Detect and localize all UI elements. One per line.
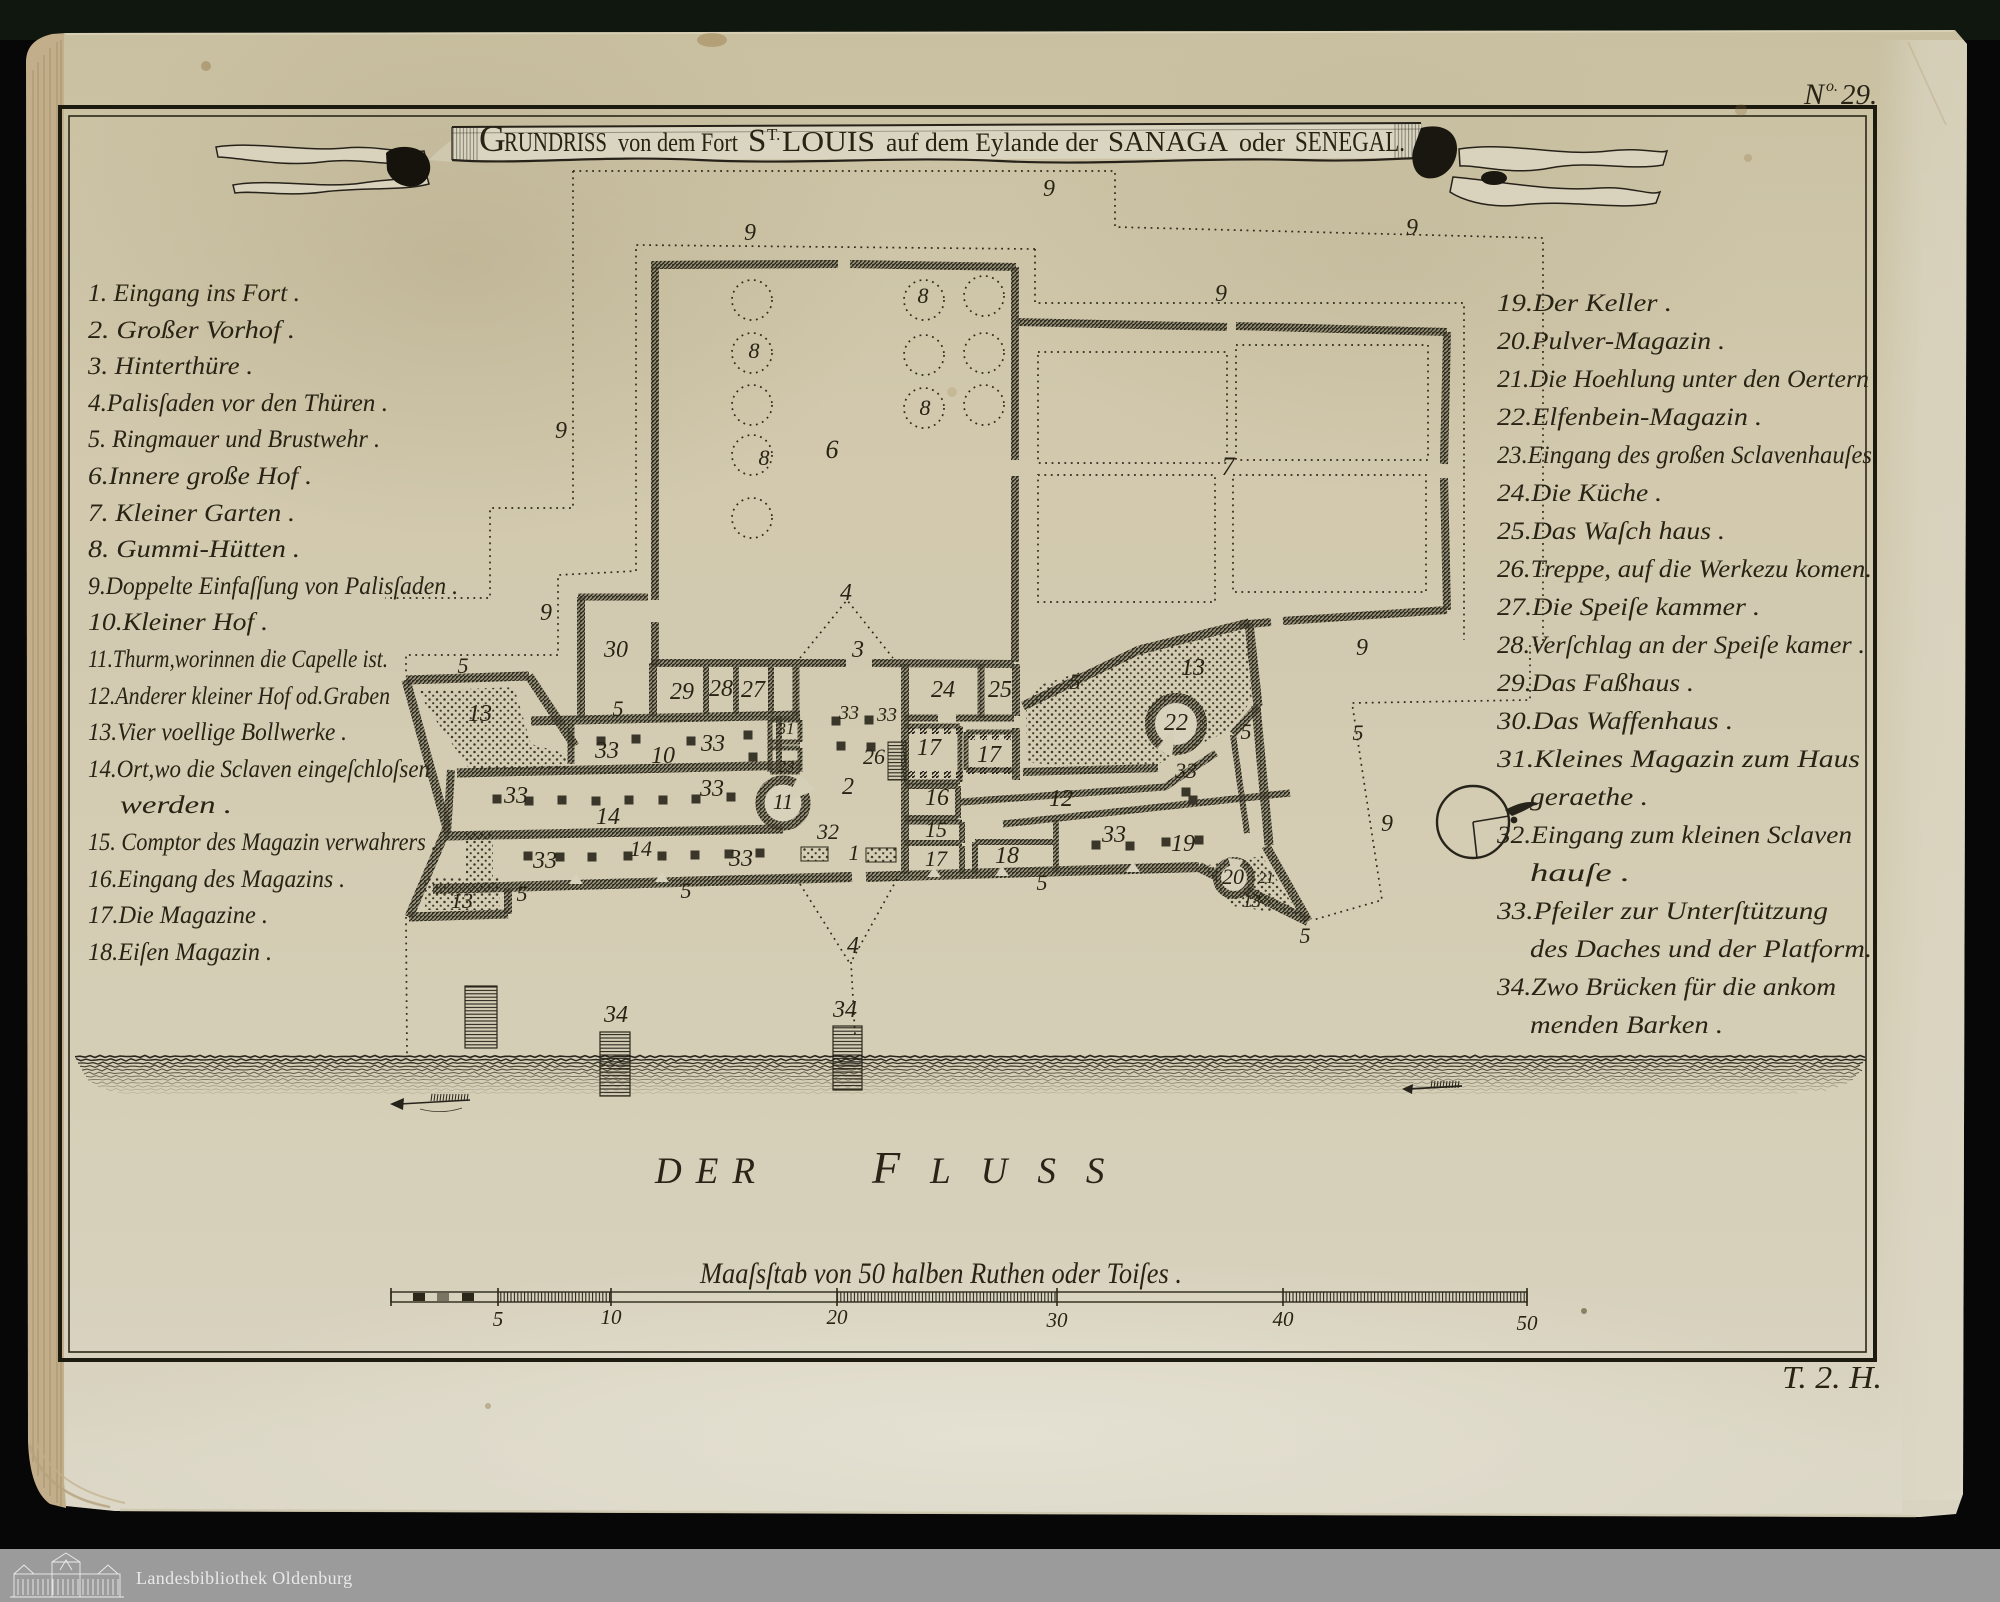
svg-text:33: 33: [876, 704, 897, 726]
svg-text:33.Pfeiler zur Unterſtützung: 33.Pfeiler zur Unterſtützung: [1496, 898, 1828, 925]
svg-text:geraethe .: geraethe .: [1530, 784, 1648, 811]
svg-text:30: 30: [603, 637, 628, 663]
svg-text:5: 5: [493, 1307, 504, 1331]
svg-text:28.Verſchlag an der Speiſe kam: 28.Verſchlag an der Speiſe kamer .: [1497, 632, 1865, 659]
svg-text:31: 31: [777, 719, 795, 738]
svg-text:5: 5: [458, 653, 469, 678]
svg-text:34.Zwo Brücken für die ankom: 34.Zwo Brücken für die ankom: [1496, 974, 1836, 1001]
svg-text:5: 5: [517, 881, 528, 906]
svg-text:5: 5: [1241, 719, 1252, 744]
svg-text:14: 14: [596, 804, 620, 830]
svg-text:18.Eiſen Magazin .: 18.Eiſen Magazin .: [88, 939, 272, 966]
svg-text:T.: T.: [767, 125, 780, 144]
svg-text:8: 8: [759, 445, 770, 470]
svg-text:17.Die Magazine .: 17.Die Magazine .: [88, 902, 268, 929]
svg-text:auf dem Eylande der: auf dem Eylande der: [886, 128, 1098, 157]
svg-text:5: 5: [613, 696, 624, 721]
svg-text:5: 5: [1353, 720, 1364, 745]
svg-text:21: 21: [1258, 870, 1274, 887]
svg-text:10: 10: [651, 743, 675, 769]
svg-text:34: 34: [603, 1002, 628, 1028]
svg-text:G: G: [479, 119, 506, 160]
svg-text:4: 4: [840, 580, 852, 606]
svg-text:15. Comptor des Magazin verwah: 15. Comptor des Magazin verwahrers .: [88, 829, 437, 856]
svg-text:S: S: [748, 123, 766, 159]
svg-text:21.Die Hoehlung unter den Oert: 21.Die Hoehlung unter den Oertern: [1497, 366, 1869, 393]
svg-text:33: 33: [503, 783, 528, 809]
svg-text:9.Doppelte Einfaſſung von Pali: 9.Doppelte Einfaſſung von Palisſaden .: [88, 573, 458, 600]
svg-text:14.Ort,wo die Sclaven eingeſch: 14.Ort,wo die Sclaven eingeſchloſsen: [88, 756, 430, 783]
svg-text:19.Der Keller .: 19.Der Keller .: [1497, 290, 1672, 317]
svg-text:DER: DER: [654, 1151, 769, 1192]
svg-text:25.Das Waſch haus .: 25.Das Waſch haus .: [1497, 518, 1725, 545]
svg-text:hauſe .: hauſe .: [1530, 860, 1630, 887]
svg-text:6.Innere große Hof .: 6.Innere große Hof .: [88, 463, 312, 490]
svg-text:20: 20: [1222, 864, 1244, 889]
svg-text:8: 8: [918, 283, 929, 308]
svg-text:29.: 29.: [1841, 79, 1877, 111]
svg-text:9: 9: [555, 418, 567, 444]
svg-text:23.Eingang des großen Sclavenh: 23.Eingang des großen Sclavenhauſes: [1497, 442, 1872, 469]
svg-text:14: 14: [630, 836, 652, 861]
svg-text:10: 10: [601, 1305, 623, 1329]
svg-text:o.: o.: [1826, 78, 1838, 95]
svg-text:29.Das Faßhaus .: 29.Das Faßhaus .: [1497, 670, 1694, 697]
svg-text:27.Die Speiſe kammer .: 27.Die Speiſe kammer .: [1497, 594, 1760, 621]
svg-text:11.Thurm,worinnen die Capelle: 11.Thurm,worinnen die Capelle ist.: [88, 646, 388, 673]
svg-text:50: 50: [1517, 1311, 1539, 1335]
svg-text:13.Vier voellige Bollwerke .: 13.Vier voellige Bollwerke .: [88, 719, 347, 746]
svg-text:5: 5: [1300, 923, 1311, 948]
svg-text:T. 2. H.: T. 2. H.: [1782, 1359, 1882, 1395]
svg-text:31.Kleines Magazin zum Haus: 31.Kleines Magazin zum Haus: [1496, 746, 1860, 773]
svg-text:40: 40: [1273, 1307, 1295, 1331]
svg-text:23: 23: [778, 757, 795, 776]
svg-text:7. Kleiner Garten .: 7. Kleiner Garten .: [88, 500, 295, 527]
svg-text:32.Eingang zum kleinen Sclaven: 32.Eingang zum kleinen Sclaven: [1496, 822, 1852, 849]
svg-text:N: N: [1803, 78, 1826, 111]
svg-text:10.Kleiner Hof .: 10.Kleiner Hof .: [88, 609, 268, 636]
svg-text:17: 17: [925, 846, 948, 871]
svg-text:33: 33: [699, 776, 724, 802]
svg-text:20: 20: [827, 1305, 849, 1329]
svg-text:24.Die Küche .: 24.Die Küche .: [1497, 480, 1662, 507]
svg-text:26.Treppe, auf die Werkezu kom: 26.Treppe, auf die Werkezu komen.: [1497, 556, 1872, 583]
svg-text:11: 11: [773, 789, 793, 814]
svg-text:33: 33: [728, 846, 753, 872]
svg-text:3: 3: [851, 637, 864, 663]
svg-text:33: 33: [1101, 822, 1126, 848]
svg-text:LOUIS: LOUIS: [782, 126, 875, 158]
svg-text:5. Ringmauer und Brustwehr .: 5. Ringmauer und Brustwehr .: [88, 426, 380, 453]
svg-text:6: 6: [826, 435, 839, 464]
svg-text:4.Palisſaden vor den Thüren .: 4.Palisſaden vor den Thüren .: [88, 390, 388, 417]
svg-text:2: 2: [842, 774, 854, 800]
svg-text:30.Das Waffenhaus .: 30.Das Waffenhaus .: [1496, 708, 1733, 735]
svg-text:33: 33: [838, 702, 859, 724]
svg-text:12: 12: [1049, 786, 1073, 812]
svg-text:30: 30: [1046, 1308, 1069, 1332]
svg-text:33: 33: [1174, 758, 1197, 783]
svg-text:5: 5: [1070, 669, 1081, 694]
svg-text:26: 26: [863, 744, 885, 769]
svg-text:4: 4: [847, 933, 859, 959]
svg-text:18: 18: [995, 843, 1019, 869]
svg-text:17: 17: [917, 735, 942, 761]
svg-text:9: 9: [1215, 281, 1227, 307]
svg-text:5: 5: [1037, 870, 1048, 895]
svg-text:13: 13: [451, 888, 473, 913]
svg-text:32: 32: [816, 819, 839, 844]
svg-text:9: 9: [1381, 811, 1393, 837]
svg-text:34: 34: [832, 997, 857, 1023]
svg-text:19: 19: [1171, 831, 1195, 857]
svg-text:RUNDRISS: RUNDRISS: [504, 127, 607, 157]
svg-text:9: 9: [744, 220, 756, 246]
svg-text:22.Elfenbein-Magazin .: 22.Elfenbein-Magazin .: [1497, 404, 1762, 431]
svg-text:16: 16: [925, 785, 949, 811]
svg-text:SANAGA: SANAGA: [1108, 127, 1229, 158]
svg-text:33: 33: [532, 848, 557, 874]
svg-text:Landesbibliothek Oldenburg: Landesbibliothek Oldenburg: [136, 1568, 353, 1588]
svg-text:29: 29: [670, 679, 694, 705]
svg-text:15: 15: [925, 817, 947, 842]
svg-text:3. Hinterthüre .: 3. Hinterthüre .: [87, 353, 253, 380]
svg-text:13: 13: [1181, 655, 1205, 681]
svg-text:oder: oder: [1239, 128, 1285, 157]
svg-text:28: 28: [709, 676, 733, 702]
svg-text:13: 13: [468, 701, 492, 727]
svg-text:25: 25: [988, 677, 1012, 703]
svg-text:5: 5: [681, 878, 692, 903]
svg-text:2. Großer Vorhof .: 2. Großer Vorhof .: [88, 317, 295, 344]
svg-text:des Daches und der Platform.: des Daches und der Platform.: [1530, 936, 1872, 963]
svg-text:33: 33: [594, 738, 619, 764]
svg-text:16.Eingang des Magazins .: 16.Eingang des Magazins .: [88, 866, 345, 893]
svg-text:8: 8: [920, 395, 931, 420]
svg-text:13: 13: [1243, 891, 1261, 911]
svg-text:9: 9: [540, 600, 552, 626]
svg-text:1: 1: [849, 840, 860, 865]
svg-text:9: 9: [1043, 176, 1055, 202]
svg-text:8: 8: [749, 338, 760, 363]
svg-text:12.Anderer kleiner Hof od.Grab: 12.Anderer kleiner Hof od.Graben: [88, 683, 390, 710]
svg-text:27: 27: [741, 677, 766, 703]
svg-text:7: 7: [1222, 452, 1236, 481]
svg-text:Maaſsſtab von 50 halben Ruthen: Maaſsſtab von 50 halben Ruthen oder Toiſ…: [699, 1257, 1182, 1290]
svg-text:9: 9: [1356, 635, 1368, 661]
svg-text:menden Barken .: menden Barken .: [1530, 1012, 1723, 1039]
svg-text:werden .: werden .: [120, 792, 232, 819]
svg-text:22: 22: [1164, 710, 1188, 736]
svg-text:24: 24: [931, 677, 955, 703]
svg-text:33: 33: [700, 731, 725, 757]
svg-text:SENEGAL.: SENEGAL.: [1295, 127, 1405, 158]
svg-text:9: 9: [1406, 215, 1418, 241]
svg-text:von dem Fort: von dem Fort: [618, 128, 739, 157]
svg-text:8. Gummi-Hütten .: 8. Gummi-Hütten .: [88, 536, 300, 563]
svg-text:1. Eingang ins Fort .: 1. Eingang ins Fort .: [88, 280, 300, 307]
svg-text:20.Pulver-Magazin .: 20.Pulver-Magazin .: [1497, 328, 1725, 355]
svg-text:17: 17: [977, 742, 1002, 768]
